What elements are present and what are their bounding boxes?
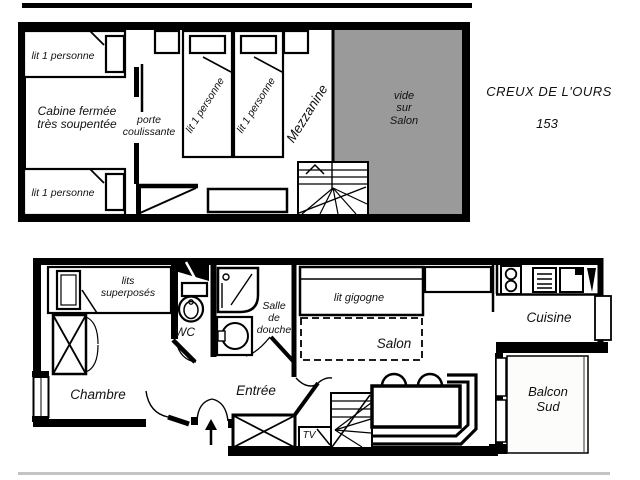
kitchen-side-door: [595, 296, 611, 340]
side-storage: [425, 267, 491, 292]
tv-cabinet: [299, 427, 331, 447]
lower-staircase: [331, 393, 372, 448]
storage-niche-right: [284, 31, 308, 53]
cabin-bed-top: [24, 31, 125, 77]
balcony-door-panel: [496, 400, 506, 442]
upper-floor-plan: [22, 3, 472, 218]
cabin-bed-bottom: [24, 169, 125, 215]
mezzanine-bed-right: [234, 31, 283, 157]
ground-line: [18, 472, 610, 475]
mezzanine-railing: [208, 189, 287, 212]
upper-facade-line: [22, 3, 472, 8]
balcony: [489, 342, 608, 454]
floor-plan-page: CREUX DE L'OURS 153 lit 1 personne lit 1…: [0, 0, 640, 480]
storage-chest: [233, 415, 295, 448]
mezzanine-bed-left: [183, 31, 232, 157]
bedroom-window: [32, 371, 49, 422]
washbasin: [217, 317, 252, 355]
toilet: [179, 283, 207, 322]
bunk-beds: [48, 267, 171, 313]
storage-niche-left: [155, 31, 179, 53]
entry-door: [191, 399, 234, 445]
wardrobe: [53, 315, 98, 374]
dining-set: [372, 374, 476, 444]
floor-plan-drawing: [0, 0, 640, 480]
shower-tray: [218, 268, 258, 312]
cabin-sliding-door: [137, 64, 143, 184]
kitchen-counter: [496, 265, 598, 295]
living-zone-dashed: [301, 318, 422, 360]
entry-living-partition: [294, 378, 332, 416]
under-roof-box: [136, 184, 198, 215]
upper-staircase: [298, 162, 368, 215]
balcony-door-panel: [496, 358, 506, 396]
pullout-bed: [300, 267, 423, 315]
bedroom-door: [146, 391, 189, 424]
drying-rack: [587, 268, 596, 292]
lower-floor-plan: [18, 258, 611, 475]
